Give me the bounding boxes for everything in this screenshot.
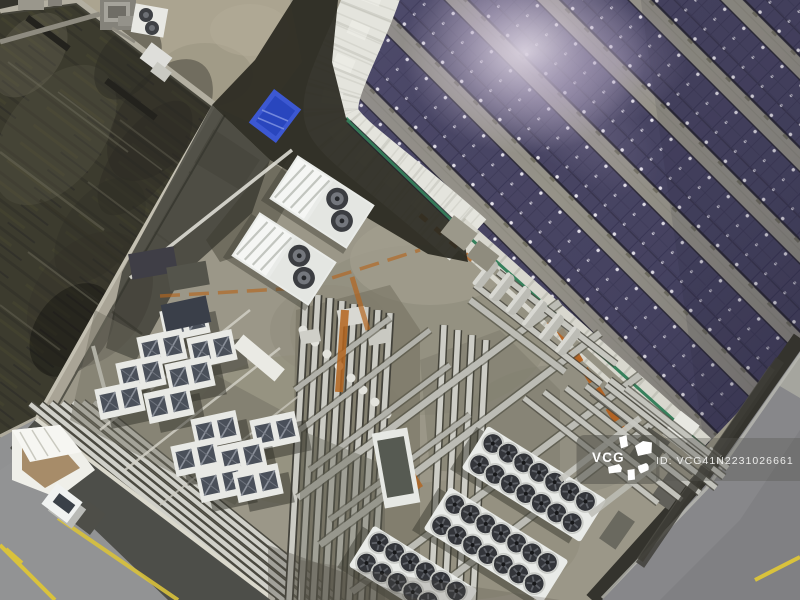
- svg-text:ID: VCG41N2231026661: ID: VCG41N2231026661: [656, 455, 794, 467]
- svg-text:VCG: VCG: [592, 450, 625, 465]
